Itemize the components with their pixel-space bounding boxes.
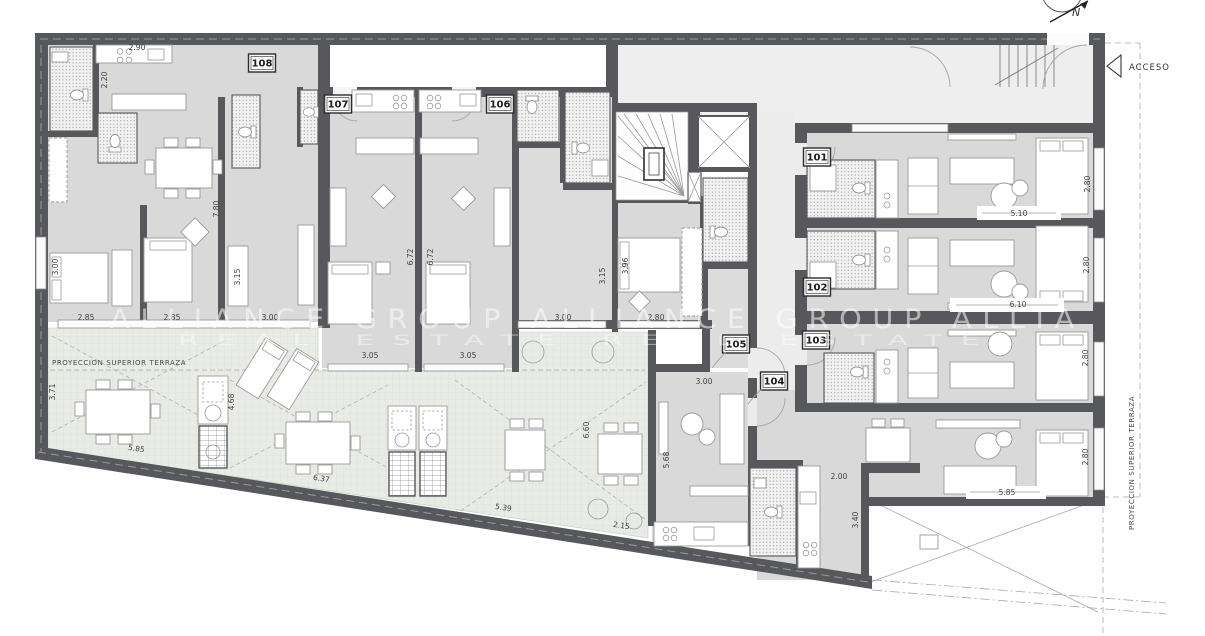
armchair <box>1012 180 1028 196</box>
armchair <box>681 413 703 435</box>
bath-sink <box>754 478 766 488</box>
dimension-label: 5.68 <box>662 451 671 468</box>
toilet <box>710 226 728 238</box>
sofa <box>950 158 1014 184</box>
dimension-label: 3.05 <box>460 351 477 360</box>
projection-label-left: PROYECCION SUPERIOR TERRAZA <box>52 359 186 367</box>
bath-sink <box>52 52 68 62</box>
kitchenette-103 <box>876 350 898 403</box>
compass-needle-tip-icon <box>1080 1 1088 9</box>
dimension-label: 6.72 <box>426 248 435 265</box>
dimension-label: 3.05 <box>362 351 379 360</box>
table <box>866 428 910 462</box>
side-table <box>920 535 938 549</box>
terrace-table <box>86 390 150 434</box>
room-number: 108 <box>252 59 273 70</box>
armchair <box>1012 284 1028 300</box>
terrace-table <box>598 434 642 474</box>
dimension-label: 3.00 <box>51 258 60 275</box>
terrace-table <box>505 430 545 470</box>
armchair <box>699 429 715 445</box>
shelf <box>659 402 668 454</box>
room-badge-108: 108 <box>249 54 276 72</box>
room-number: 102 <box>807 283 828 294</box>
terrace-table <box>286 422 350 464</box>
room-number: 106 <box>490 100 511 111</box>
toilet <box>765 506 783 518</box>
room-number: 101 <box>807 153 828 164</box>
dimension-label: 6.72 <box>406 248 415 265</box>
dimension-label: 3.15 <box>598 267 607 284</box>
toilet <box>853 254 871 266</box>
dimension-label: 5.85 <box>999 488 1016 497</box>
wardrobe <box>682 228 702 316</box>
wardrobe <box>298 225 314 305</box>
kitchen-island-108 <box>112 94 186 110</box>
sofa <box>330 188 346 246</box>
room-number: 107 <box>328 100 349 111</box>
dimension-label: 2.80 <box>1082 256 1091 273</box>
dimension-label: 2.85 <box>78 313 95 322</box>
armchair <box>996 431 1012 447</box>
dimension-label: 2.80 <box>1083 175 1092 192</box>
dimension-label: 4.68 <box>227 393 236 410</box>
dimension-label: 7.80 <box>212 200 221 217</box>
room-badge-101: 101 <box>804 148 831 166</box>
entry-opening <box>1047 33 1089 45</box>
room-badge-107: 107 <box>325 95 352 113</box>
bed <box>1036 138 1088 214</box>
dimension-label: 3.96 <box>621 257 630 274</box>
sofa <box>494 188 510 246</box>
kitchen-island-106 <box>420 138 478 154</box>
projection-label-right: PROYECCION SUPERIOR TERRAZA <box>1128 396 1136 530</box>
bath-sink <box>592 160 608 176</box>
bath-105 <box>703 178 748 262</box>
corridor-floor <box>757 112 795 412</box>
dining-table <box>156 148 212 188</box>
dimension-label: 3.15 <box>233 268 242 285</box>
watermark-line1: ALLIANCE GROUP ALLIANCE GROUP ALLIA <box>110 304 1085 335</box>
toilet <box>239 126 257 138</box>
bed <box>144 238 192 302</box>
dimension-label: 2.20 <box>100 71 109 88</box>
tv-bench <box>936 420 1020 428</box>
toilet <box>853 182 871 194</box>
kitchen-counter-105 <box>654 522 748 546</box>
room-badge-104: 104 <box>761 372 788 390</box>
watermark-line2: REAL ESTATE REAL ESTATE <box>178 333 998 349</box>
toilet <box>851 366 869 378</box>
dimension-label: 2.90 <box>129 43 146 52</box>
tv-bench <box>690 486 748 496</box>
dimension-label: 2.00 <box>831 472 848 481</box>
toilet <box>303 107 318 117</box>
dimension-label: 6.60 <box>582 421 591 438</box>
sofa <box>720 394 744 464</box>
kitchen-island-107 <box>356 138 414 154</box>
room-badge-102: 102 <box>804 278 831 296</box>
access-marker: ACCESO <box>1107 55 1170 77</box>
closet <box>49 138 67 202</box>
north-label: N <box>1072 6 1080 19</box>
dimension-label: 2.80 <box>1081 448 1090 465</box>
bbq-parrilla <box>198 376 228 468</box>
access-label: ACCESO <box>1129 63 1170 73</box>
room-badge-106: 106 <box>487 95 514 113</box>
access-arrow-icon <box>1107 55 1121 77</box>
nightstand <box>376 262 390 274</box>
north-compass: N <box>1042 0 1088 22</box>
floor-plan-page: 2.902.203.007.803.152.852.853.003.053.05… <box>0 0 1205 636</box>
dimension-label: 3.40 <box>851 511 860 528</box>
dimension-label: 3.00 <box>696 377 713 386</box>
tv-bench <box>948 134 1016 140</box>
toilet <box>526 96 538 114</box>
sofa <box>950 362 1014 388</box>
toilet <box>71 89 89 101</box>
room-number: 104 <box>764 377 785 388</box>
sofa <box>112 250 132 306</box>
dimension-label: 2.80 <box>1081 349 1090 366</box>
dimension-label: 3.71 <box>48 383 57 400</box>
floor-plan-drawing: 2.902.203.007.803.152.852.853.003.053.05… <box>0 0 1205 636</box>
dimension-label: 5.10 <box>1011 209 1028 218</box>
kitchenette-101 <box>876 160 898 218</box>
sofa <box>950 240 1014 266</box>
shower <box>810 165 836 191</box>
toilet <box>572 142 590 154</box>
kitchenette-102 <box>876 231 898 289</box>
toilet <box>109 135 121 153</box>
